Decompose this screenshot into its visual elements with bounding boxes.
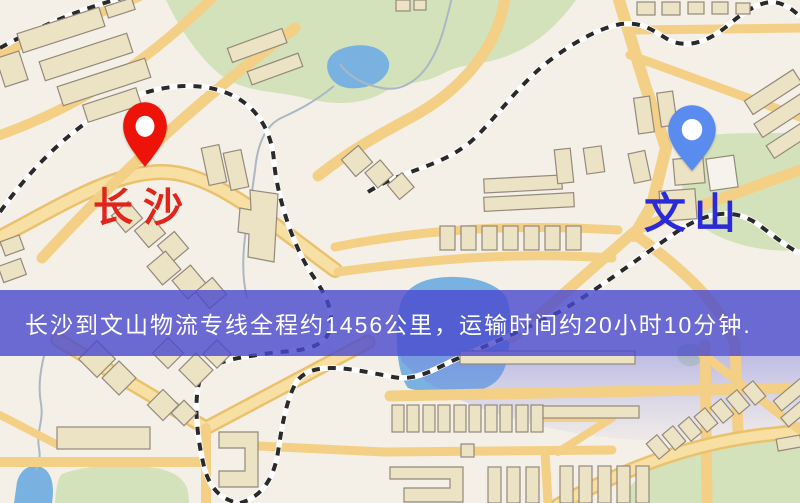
origin-pin-icon[interactable]	[122, 101, 168, 168]
origin-label: 长沙	[93, 175, 193, 233]
route-info-banner: 长沙到文山物流专线全程约1456公里，运输时间约20小时10分钟.	[0, 290, 800, 356]
destination-label: 文山	[644, 180, 744, 241]
map[interactable]: 长沙 文山 长沙到文山物流专线全程约1456公里，运输时间约20小时10分钟.	[0, 0, 800, 503]
map-svg	[0, 0, 800, 503]
destination-pin-icon[interactable]	[667, 104, 717, 172]
route-info-text: 长沙到文山物流专线全程约1456公里，运输时间约20小时10分钟.	[0, 306, 752, 340]
